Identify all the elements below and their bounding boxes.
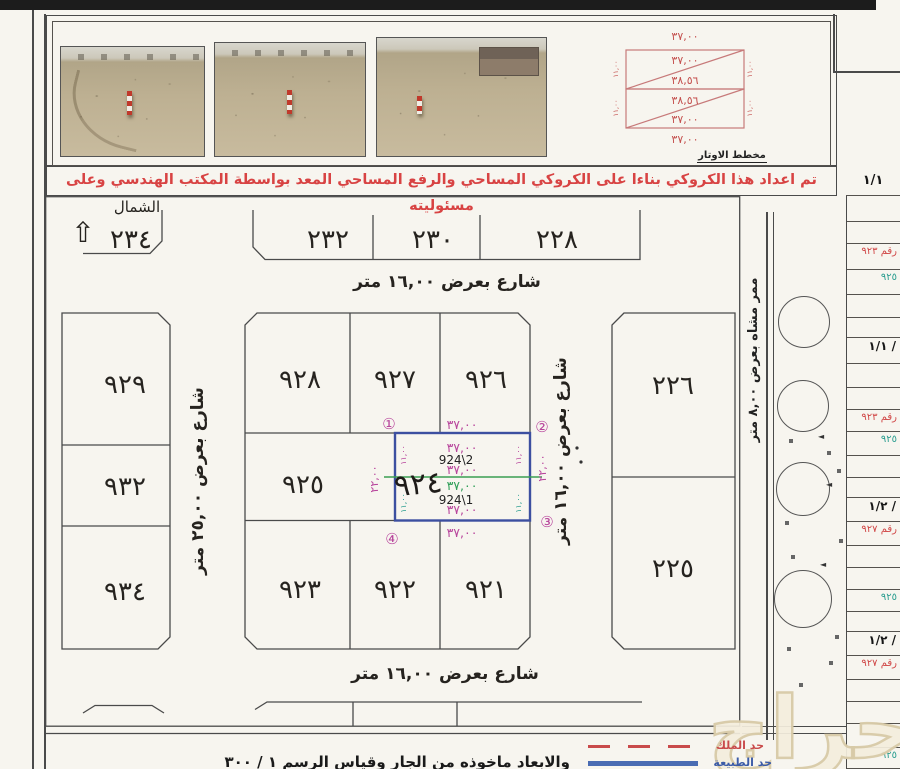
subplot-924-1-label: 924\1: [439, 493, 474, 507]
survey-dot: [579, 460, 582, 463]
survey-sketch-page: ٣٧,٠٠ ٣٧,٠٠ ٣٨,٥٦ ٣٨,٥٦ ٣٧,٠٠ ٣٧,٠٠ ١١,٠…: [0, 0, 900, 769]
side-table-row: [847, 318, 900, 338]
plot-label-923: ٩٢٣: [279, 575, 321, 605]
side-table-row: [847, 388, 900, 410]
chord-width-above: ٣٧,٠٠: [671, 30, 698, 43]
chord-diagram-title: مخطط الاوتار: [697, 150, 767, 163]
walkway-label: ممر مشاه بعرض ٨,٠٠ متر: [746, 252, 762, 468]
side-table-row: ٩٢٥: [847, 590, 900, 612]
corner-mark-4: ④: [385, 530, 398, 548]
plot-map: الشمال ⇧ ٢٣٤ ٢٣٢ ٢٣٠ ٢٢٨ ٩٢٩ ٩٣٢ ٩٣٤ ٩٢٨…: [45, 196, 742, 737]
horizon-building: [479, 47, 539, 76]
walkway-circle: [777, 380, 829, 432]
north-label: الشمال: [114, 198, 160, 216]
scan-top-bar: [0, 0, 876, 10]
plot-label-232: ٢٣٢: [307, 225, 349, 255]
street-label-right: شارع بعرض ١٦,٠٠ متر: [551, 357, 571, 546]
horizon-structures: [215, 50, 365, 56]
chord-r1-side-left: ١١,٠٠: [612, 60, 620, 77]
survey-stake-marker: [417, 96, 422, 114]
depth-924-left: ٢٢,٠٠: [368, 465, 381, 492]
plot-label-922: ٩٢٢: [374, 575, 416, 605]
depth-924-right: ٢٢,٠٠: [536, 454, 549, 481]
plot-label-932: ٩٣٢: [104, 472, 146, 502]
plot-label-934: ٩٣٤: [104, 577, 146, 607]
street-label-bottom: شارع بعرض ١٦,٠٠ متر: [350, 664, 539, 684]
side-table-row: [847, 222, 900, 244]
footer-note: والابعاد ماخوذه من الجار وقياس الرسم ١ /…: [90, 753, 570, 769]
side-table-row: [847, 478, 900, 498]
street-label-top: شارع بعرض ١٦,٠٠ متر: [352, 272, 541, 292]
plot-label-925: ٩٢٥: [282, 470, 324, 500]
half-depth-top-left: ١١,٠٠: [399, 445, 408, 465]
legend-line-property: [588, 745, 698, 748]
corner-mark-1: ①: [382, 415, 395, 433]
walkway-line-2: [773, 212, 775, 740]
corner-mark-3: ③: [540, 513, 553, 531]
chord-r1-width: ٣٧,٠٠: [671, 54, 698, 67]
half-depth-bottom-right: ١١,٠٠: [514, 493, 523, 513]
page-ref-label: ١/١: [846, 166, 900, 196]
plot-label-230: ٢٣٠: [412, 225, 454, 255]
width-924-below: ٣٧,٠٠: [447, 525, 478, 540]
corner-mark-2: ②: [535, 418, 548, 436]
corner-line-h: [833, 71, 900, 73]
plot-label-921: ٩٢١: [465, 575, 507, 605]
chord-r1-diagonal: ٣٨,٥٦: [671, 74, 698, 87]
walkway-circle: [776, 462, 830, 516]
tire-tracks: [61, 69, 152, 152]
side-table-row: [847, 196, 900, 222]
horizon-structures: [61, 54, 204, 60]
site-photo-1: [60, 46, 205, 157]
survey-stake-marker: [127, 91, 132, 115]
page-border-outer: [32, 10, 34, 769]
width-924-mid-lower: ٣٧,٠٠: [447, 478, 478, 493]
chord-width-below: ٣٧,٠٠: [671, 133, 698, 146]
north-arrow-icon: ⇧: [71, 216, 94, 249]
legend-line-nature: [588, 761, 698, 766]
plot-label-234: ٢٣٤: [110, 225, 152, 255]
side-table-row: ٩٢٥: [847, 270, 900, 295]
walkway-arrow-mark: ◄: [818, 432, 824, 441]
side-table-row: رقم ٩٢٧: [847, 656, 900, 680]
walkway-line-1: [766, 212, 768, 740]
plot-label-929: ٩٢٩: [104, 370, 146, 400]
legend-label-nature: حد الطبيعة: [702, 756, 772, 769]
chord-r2-diagonal: ٣٨,٥٦: [671, 94, 698, 107]
chord-r2-width: ٣٧,٠٠: [671, 113, 698, 126]
survey-dot: [575, 446, 578, 449]
walkway-arrow-mark: ◄: [826, 480, 832, 489]
site-photo-2: [214, 42, 366, 157]
side-table-row: ٩٢٥: [847, 432, 900, 456]
plot-label-228: ٢٢٨: [536, 225, 578, 255]
side-table-row: [847, 295, 900, 318]
side-table-row: رقم ٩٢٣: [847, 244, 900, 270]
site-photo-3: [376, 37, 547, 157]
side-table-row: [847, 546, 900, 568]
disclaimer-banner: تم اعداد هذا الكروكي بناءا على الكروكي ا…: [46, 166, 837, 196]
survey-stake-marker: [287, 90, 292, 114]
plot-label-928: ٩٢٨: [279, 365, 321, 395]
street-label-left: شارع بعرض ٢٥,٠٠ متر: [188, 387, 208, 576]
side-table-row: رقم ٩٢٣: [847, 410, 900, 432]
plot-label-926: ٩٢٦: [465, 365, 507, 395]
side-table-row: ١/٢ /: [847, 632, 900, 656]
plot-label-225: ٢٢٥: [652, 554, 694, 584]
side-table-row: ١/١ /: [847, 338, 900, 364]
chord-r2-side-right: ١١,٠٠: [746, 99, 754, 116]
side-table-row: [847, 612, 900, 632]
side-table-row: [847, 364, 900, 388]
legend-label-property: حد الملك: [702, 739, 764, 752]
subplot-924-2-label: 924\2: [439, 453, 474, 467]
chord-r1-side-right: ١١,٠٠: [746, 60, 754, 77]
side-table-row: رقم ٩٢٧: [847, 522, 900, 546]
side-table-row: ١/٢ /: [847, 498, 900, 522]
plot-label-226: ٢٢٦: [652, 371, 694, 401]
plot-label-927: ٩٢٧: [374, 365, 416, 395]
half-depth-top-right: ١١,٠٠: [514, 445, 523, 465]
chord-r2-side-left: ١١,٠٠: [612, 99, 620, 116]
chord-diagram: ٣٧,٠٠ ٣٧,٠٠ ٣٨,٥٦ ٣٨,٥٦ ٣٧,٠٠ ٣٧,٠٠ ١١,٠…: [598, 24, 770, 152]
walkway-circle: [778, 296, 830, 348]
side-table-row: [847, 456, 900, 478]
walkway-specks: [0, 0, 2, 2]
side-table-row: [847, 568, 900, 590]
walkway-circle: [774, 570, 832, 628]
width-924-above: ٣٧,٠٠: [447, 417, 478, 432]
half-depth-bottom-left: ١١,٠٠: [399, 493, 408, 513]
walkway-arrow-mark: ◄: [820, 560, 826, 569]
